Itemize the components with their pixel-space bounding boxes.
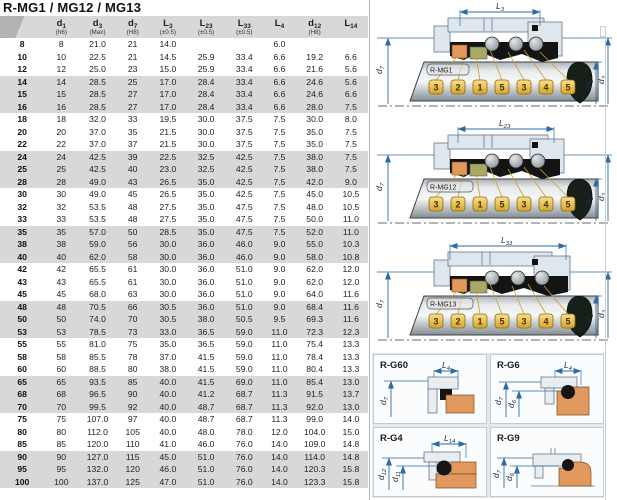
value-cell: 21.0 (78, 38, 116, 51)
value-cell: 20 (44, 126, 78, 139)
svg-text:L14: L14 (444, 433, 455, 445)
value-cell (225, 38, 263, 51)
value-cell: 63 (117, 288, 149, 301)
value-cell: 9.5 (263, 313, 295, 326)
value-cell: 46.0 (187, 438, 225, 451)
value-cell: 30.0 (296, 113, 334, 126)
value-cell: 9.0 (263, 251, 295, 264)
value-cell: 97 (117, 413, 149, 426)
part-tags: 3 2 1 5 3 4 5 (429, 80, 575, 94)
value-cell: 120.3 (296, 463, 334, 476)
table-row: 656593.58540.041.569.011.085.413.0 (0, 376, 368, 389)
value-cell: 51.0 (225, 263, 263, 276)
value-cell: 78.4 (296, 351, 334, 364)
value-cell: 60 (44, 363, 78, 376)
value-cell: 125 (117, 476, 149, 489)
size-cell: 40 (0, 251, 44, 264)
value-cell: 76.0 (225, 463, 263, 476)
value-cell: 68.0 (78, 288, 116, 301)
value-cell: 48 (117, 201, 149, 214)
svg-text:2: 2 (455, 200, 460, 210)
size-cell: 30 (0, 188, 44, 201)
table-row: 242442.53922.532.542.57.538.07.5 (0, 151, 368, 164)
svg-text:L23: L23 (499, 118, 511, 130)
table-row: 141428.52517.028.433.46.624.65.6 (0, 76, 368, 89)
size-cell: 35 (0, 226, 44, 239)
value-cell: 32 (44, 201, 78, 214)
value-cell: 78.5 (78, 326, 116, 339)
size-cell: 50 (0, 313, 44, 326)
value-cell: 21 (117, 38, 149, 51)
value-cell: 7.5 (334, 163, 368, 176)
spring-circle (531, 154, 545, 168)
value-cell: 6.0 (263, 38, 295, 51)
size-cell: 68 (0, 388, 44, 401)
value-cell: 132.0 (78, 463, 116, 476)
value-cell: 17.0 (149, 88, 187, 101)
size-cell: 43 (0, 276, 44, 289)
value-cell: 76.0 (225, 476, 263, 489)
spring-circle (511, 271, 525, 285)
value-cell: 35.0 (296, 138, 334, 151)
value-cell: 59.0 (225, 363, 263, 376)
value-cell: 28.5 (149, 226, 187, 239)
value-cell: 35.0 (187, 188, 225, 201)
size-cell: 20 (0, 126, 44, 139)
column-header: d1(h6) (44, 16, 78, 38)
value-cell: 30.0 (149, 288, 187, 301)
value-cell: 115 (117, 451, 149, 464)
value-cell: 5.6 (334, 63, 368, 76)
value-cell: 22.5 (78, 51, 116, 64)
value-cell: 22 (44, 138, 78, 151)
value-cell: 70.5 (78, 301, 116, 314)
value-cell: 35.0 (187, 226, 225, 239)
table-row: 333353.54827.535.047.57.550.011.0 (0, 213, 368, 226)
value-cell: 11.0 (334, 213, 368, 226)
value-cell: 76.0 (225, 451, 263, 464)
value-cell: 11.6 (334, 313, 368, 326)
value-cell: 37.5 (225, 138, 263, 151)
column-header: d7(H8) (117, 16, 149, 38)
value-cell: 112.0 (78, 426, 116, 439)
value-cell: 51.0 (187, 463, 225, 476)
column-header: L3(±0.5) (149, 16, 187, 38)
value-cell: 11.0 (263, 351, 295, 364)
table-row: 100100137.012547.051.076.014.0123.315.8 (0, 476, 368, 489)
value-cell: 91.5 (296, 388, 334, 401)
seal-diagram-r-mg12: R-MG12 3 2 1 5 3 4 5 (372, 117, 616, 234)
orange-seat (452, 279, 467, 292)
value-cell: 59.0 (225, 326, 263, 339)
table-row: 434365.56130.036.051.09.062.012.0 (0, 276, 368, 289)
value-cell: 21.5 (149, 126, 187, 139)
size-cell: 25 (0, 163, 44, 176)
value-cell: 127.0 (78, 451, 116, 464)
value-cell: 35 (117, 126, 149, 139)
value-cell: 7.5 (263, 226, 295, 239)
value-cell: 58.0 (296, 251, 334, 264)
size-cell: 45 (0, 288, 44, 301)
value-cell: 85 (44, 438, 78, 451)
value-cell: 93.5 (78, 376, 116, 389)
value-cell: 23 (117, 63, 149, 76)
value-cell: 48 (44, 301, 78, 314)
value-cell: 78 (117, 351, 149, 364)
value-cell: 33.0 (149, 326, 187, 339)
value-cell: 9.0 (263, 238, 295, 251)
value-cell: 36.0 (187, 263, 225, 276)
diagram-label: R-MG13 (430, 302, 457, 309)
table-row: 151528.52717.028.433.46.624.66.6 (0, 88, 368, 101)
catalog-page: R-MG1 / MG12 / MG13 d1(h6)d3(Max)d7(H8)L… (0, 0, 617, 500)
model-badge: R-MG13 (427, 298, 473, 309)
value-cell: 12.0 (263, 426, 295, 439)
dimension-d6: d6 (504, 466, 559, 488)
value-cell: 61 (117, 263, 149, 276)
table-row: 161628.52717.028.433.46.628.07.5 (0, 101, 368, 114)
value-cell: 123.3 (296, 476, 334, 489)
o-ring (437, 461, 452, 476)
size-cell: 60 (0, 363, 44, 376)
value-cell: 13.0 (334, 376, 368, 389)
size-cell: 24 (0, 151, 44, 164)
value-cell: 75.4 (296, 338, 334, 351)
value-cell: 15.8 (334, 463, 368, 476)
value-cell: 37.5 (225, 113, 263, 126)
dimension-d7: d7 (493, 382, 541, 417)
value-cell: 48.0 (296, 201, 334, 214)
value-cell: 6.6 (263, 76, 295, 89)
value-cell: 66 (117, 301, 149, 314)
value-cell: 99.5 (78, 401, 116, 414)
value-cell: 6.6 (263, 88, 295, 101)
value-cell: 75 (117, 338, 149, 351)
value-cell: 51.0 (225, 288, 263, 301)
value-cell: 28.5 (78, 88, 116, 101)
value-cell: 41.5 (187, 376, 225, 389)
value-cell: 8.0 (334, 113, 368, 126)
seal-diagram-r-mg1: R-MG1 3 2 1 5 3 4 5 (372, 0, 616, 117)
value-cell: 35.0 (149, 338, 187, 351)
value-cell: 43 (44, 276, 78, 289)
value-cell: 42.5 (225, 163, 263, 176)
value-cell: 61 (117, 276, 149, 289)
svg-text:d7: d7 (491, 469, 503, 478)
value-cell: 11.0 (263, 376, 295, 389)
value-cell: 27.5 (149, 213, 187, 226)
value-cell: 33.4 (225, 63, 263, 76)
size-cell: 15 (0, 88, 44, 101)
value-cell: 16 (44, 101, 78, 114)
svg-text:L33: L33 (501, 235, 513, 247)
value-cell: 25 (44, 163, 78, 176)
value-cell: 50 (44, 313, 78, 326)
value-cell: 51.0 (187, 476, 225, 489)
value-cell: 53 (44, 326, 78, 339)
value-cell: 65.5 (78, 263, 116, 276)
value-cell: 28 (44, 176, 78, 189)
table-row: 8585120.011041.046.076.014.0109.014.8 (0, 438, 368, 451)
value-cell: 12 (44, 63, 78, 76)
size-cell: 33 (0, 213, 44, 226)
value-cell: 15.8 (334, 476, 368, 489)
table-row: 222237.03721.530.037.57.535.07.5 (0, 138, 368, 151)
svg-text:3: 3 (433, 317, 438, 327)
value-cell: 35.0 (296, 126, 334, 139)
value-cell: 95 (44, 463, 78, 476)
value-cell: 50.0 (296, 213, 334, 226)
value-cell: 32.0 (78, 113, 116, 126)
value-cell: 7.5 (334, 126, 368, 139)
value-cell: 15 (44, 88, 78, 101)
value-cell: 70 (44, 401, 78, 414)
value-cell: 11.6 (334, 288, 368, 301)
diagram-label: R-MG12 (430, 185, 457, 192)
value-cell: 92.0 (296, 401, 334, 414)
value-cell: 24 (44, 151, 78, 164)
value-cell: 80.4 (296, 363, 334, 376)
value-cell: 68.7 (225, 413, 263, 426)
value-cell: 38.0 (149, 363, 187, 376)
value-cell: 7.5 (263, 176, 295, 189)
value-cell: 59.0 (78, 238, 116, 251)
value-cell: 11.0 (263, 326, 295, 339)
value-cell: 49.0 (78, 188, 116, 201)
value-cell: 33.4 (225, 76, 263, 89)
value-cell: 46.0 (225, 251, 263, 264)
value-cell: 11.6 (334, 301, 368, 314)
size-cell: 32 (0, 201, 44, 214)
value-cell: 6.6 (263, 101, 295, 114)
value-cell: 120 (117, 463, 149, 476)
diagram-label: R-MG1 (430, 68, 453, 75)
value-cell: 50.5 (225, 313, 263, 326)
value-cell: 14.0 (263, 463, 295, 476)
value-cell: 107.0 (78, 413, 116, 426)
svg-text:3: 3 (433, 83, 438, 93)
value-cell: 109.0 (296, 438, 334, 451)
value-cell: 62.0 (296, 263, 334, 276)
svg-text:d6: d6 (506, 399, 518, 408)
table-row: 686896.59040.041.268.711.391.513.7 (0, 388, 368, 401)
value-cell: 5.6 (334, 76, 368, 89)
table-row: 9090127.011545.051.076.014.0114.014.8 (0, 451, 368, 464)
value-cell: 26.5 (149, 176, 187, 189)
size-cell: 80 (0, 426, 44, 439)
value-cell: 38 (44, 238, 78, 251)
page-edge-line (605, 26, 606, 500)
value-cell: 12.3 (334, 326, 368, 339)
svg-text:d7: d7 (374, 65, 386, 74)
value-cell: 53.5 (78, 213, 116, 226)
spring-circle (529, 37, 543, 51)
value-cell: 33 (117, 113, 149, 126)
value-cell: 137.0 (78, 476, 116, 489)
svg-text:4: 4 (543, 317, 548, 327)
value-cell: 17.0 (149, 101, 187, 114)
value-cell: 42 (44, 263, 78, 276)
value-cell: 40.0 (149, 426, 187, 439)
value-cell: 30 (44, 188, 78, 201)
svg-text:5: 5 (565, 317, 570, 327)
size-cell: 65 (0, 376, 44, 389)
size-cell: 75 (0, 413, 44, 426)
value-cell: 6.6 (334, 51, 368, 64)
value-cell: 104.0 (296, 426, 334, 439)
column-header: L33(±0.5) (225, 16, 263, 38)
value-cell: 30.0 (149, 238, 187, 251)
value-cell: 19.5 (149, 113, 187, 126)
table-row: 606088.58038.041.559.011.080.413.3 (0, 363, 368, 376)
column-header: L23(±0.5) (187, 16, 225, 38)
value-cell: 37.0 (78, 138, 116, 151)
size-cell: 8 (0, 38, 44, 51)
column-header (0, 16, 44, 38)
value-cell: 80 (117, 363, 149, 376)
table-row: 252542.54023.032.542.57.538.07.5 (0, 163, 368, 176)
svg-text:2: 2 (455, 317, 460, 327)
o-ring (562, 459, 574, 471)
value-cell: 76.0 (225, 438, 263, 451)
value-cell: 45 (117, 188, 149, 201)
value-cell: 42.5 (78, 163, 116, 176)
table-row: 202037.03521.530.037.57.535.07.5 (0, 126, 368, 139)
value-cell: 51.0 (187, 451, 225, 464)
table-row: 585885.57837.041.559.011.078.413.3 (0, 351, 368, 364)
value-cell: 7.5 (263, 213, 295, 226)
value-cell: 18 (44, 113, 78, 126)
table-row: 8821.02114.06.0 (0, 38, 368, 51)
value-cell: 7.5 (263, 201, 295, 214)
olive-ring (470, 164, 487, 176)
svg-text:d7: d7 (374, 299, 386, 308)
value-cell: 27 (117, 88, 149, 101)
spring-circle (509, 154, 523, 168)
size-cell: 14 (0, 76, 44, 89)
value-cell: 40 (117, 163, 149, 176)
table-row: 404062.05830.036.046.09.058.010.8 (0, 251, 368, 264)
size-cell: 55 (0, 338, 44, 351)
value-cell: 65.5 (78, 276, 116, 289)
table-row: 383859.05630.036.046.09.055.010.3 (0, 238, 368, 251)
value-cell: 47.5 (225, 201, 263, 214)
svg-text:3: 3 (521, 317, 526, 327)
value-cell: 27 (117, 101, 149, 114)
value-cell: 21.5 (149, 138, 187, 151)
value-cell: 37.5 (225, 126, 263, 139)
value-cell: 9.0 (334, 176, 368, 189)
size-cell: 12 (0, 63, 44, 76)
value-cell: 105 (117, 426, 149, 439)
value-cell: 30.0 (149, 251, 187, 264)
size-cell: 70 (0, 401, 44, 414)
table-row: 505074.07030.538.050.59.569.311.6 (0, 313, 368, 326)
value-cell: 45 (44, 288, 78, 301)
panel-label: R-G4 (380, 433, 403, 444)
value-cell: 10.3 (334, 238, 368, 251)
value-cell: 62.0 (296, 276, 334, 289)
value-cell: 40.0 (149, 376, 187, 389)
value-cell: 24.6 (296, 88, 334, 101)
value-cell: 9.0 (263, 263, 295, 276)
value-cell: 14.0 (263, 438, 295, 451)
value-cell: 24.6 (296, 76, 334, 89)
value-cell: 36.0 (187, 288, 225, 301)
size-cell: 10 (0, 51, 44, 64)
value-cell: 7.5 (334, 138, 368, 151)
value-cell: 27.5 (149, 201, 187, 214)
olive-ring (470, 281, 487, 293)
value-cell: 36.0 (187, 251, 225, 264)
seal-diagram-r-mg13: R-MG13 3 2 1 5 3 4 5 (372, 234, 616, 351)
value-cell: 37.0 (149, 351, 187, 364)
value-cell: 45.0 (149, 451, 187, 464)
value-cell: 68 (44, 388, 78, 401)
value-cell: 13.7 (334, 388, 368, 401)
value-cell: 55.0 (296, 238, 334, 251)
value-cell: 41.5 (187, 363, 225, 376)
value-cell: 11.0 (334, 226, 368, 239)
value-cell: 30.0 (187, 138, 225, 151)
value-cell: 48.0 (187, 426, 225, 439)
svg-text:3: 3 (521, 83, 526, 93)
table-row: 454568.06330.036.051.09.064.011.6 (0, 288, 368, 301)
value-cell: 92 (117, 401, 149, 414)
value-cell: 36.5 (187, 338, 225, 351)
table-row: 303049.04526.535.042.57.545.010.5 (0, 188, 368, 201)
table-row: 707099.59240.048.768.711.392.013.0 (0, 401, 368, 414)
dimension-d7: d7 (491, 458, 533, 488)
value-cell: 37.0 (78, 126, 116, 139)
size-cell: 28 (0, 176, 44, 189)
value-cell (296, 38, 334, 51)
value-cell: 32.5 (187, 151, 225, 164)
value-cell: 28.4 (187, 88, 225, 101)
value-cell: 10.5 (334, 201, 368, 214)
model-badge: R-MG12 (427, 181, 473, 192)
svg-text:1: 1 (477, 317, 482, 327)
value-cell: 7.5 (263, 188, 295, 201)
table-row: 121225.02315.025.933.46.621.65.6 (0, 63, 368, 76)
table-row: 8080112.010540.048.078.012.0104.015.0 (0, 426, 368, 439)
value-cell: 42.5 (225, 151, 263, 164)
svg-text:d7: d7 (378, 396, 390, 405)
value-cell: 13.3 (334, 363, 368, 376)
panel-r-g6: R-G6 L4 (490, 354, 604, 424)
value-cell: 46.0 (149, 463, 187, 476)
size-cell: 16 (0, 101, 44, 114)
value-cell: 35.0 (187, 176, 225, 189)
table-row: 9595132.012046.051.076.014.0120.315.8 (0, 463, 368, 476)
panel-label: R-G60 (380, 360, 408, 371)
value-cell: 41.2 (187, 388, 225, 401)
table-row: 555581.07535.036.559.011.075.413.3 (0, 338, 368, 351)
value-cell: 9.0 (263, 301, 295, 314)
value-cell: 13.3 (334, 338, 368, 351)
orange-seat (452, 45, 467, 58)
value-cell: 11.3 (263, 413, 295, 426)
value-cell: 40.0 (149, 401, 187, 414)
value-cell: 55 (44, 338, 78, 351)
value-cell: 33.4 (225, 51, 263, 64)
value-cell: 65 (44, 376, 78, 389)
value-cell: 85.4 (296, 376, 334, 389)
spring-circle (509, 37, 523, 51)
value-cell: 30.5 (149, 313, 187, 326)
value-cell: 47.5 (225, 213, 263, 226)
value-cell: 68.7 (225, 401, 263, 414)
